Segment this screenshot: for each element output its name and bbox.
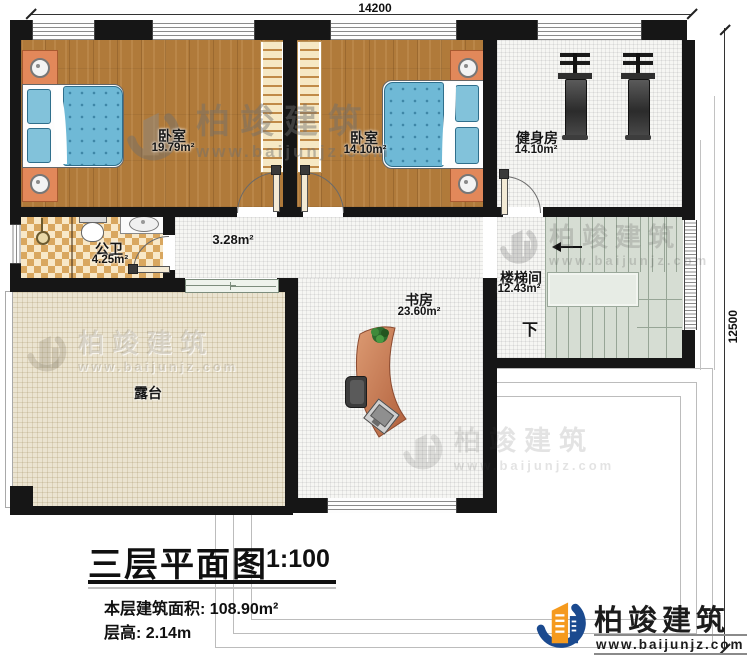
bedroom2-door-leaf — [301, 170, 308, 212]
terrace-south-wall — [10, 506, 293, 515]
dimension-top-line — [30, 14, 692, 15]
stairwell-window — [684, 220, 697, 330]
page-title: 三层平面图 — [88, 537, 268, 586]
gym-area: 14.10m² — [515, 144, 558, 156]
terrace-west-railing — [5, 291, 13, 508]
wall-segment — [640, 20, 687, 40]
wardrobe — [297, 41, 322, 173]
dimension-tick — [719, 24, 730, 35]
roof-outline-line — [714, 96, 715, 370]
sheet-fold — [442, 82, 456, 165]
drawing-scale: 1:100 — [266, 545, 330, 574]
hallway-floor — [175, 217, 483, 278]
nightstand — [22, 166, 58, 202]
bedroom1-area: 19.79m² — [152, 142, 195, 154]
terrace-sliding-door — [185, 279, 279, 293]
window — [330, 20, 457, 40]
study-south-wall — [285, 498, 327, 513]
pillow — [455, 127, 479, 164]
study-window — [327, 498, 457, 513]
stairs-landing — [548, 273, 638, 306]
wall-between-bedrooms — [283, 40, 297, 207]
bedroom1-door-leaf — [273, 170, 280, 212]
floor-area-value: 108.90m² — [210, 601, 279, 618]
pillow — [27, 89, 51, 124]
roof-outline-line — [700, 140, 701, 370]
dimension-top: 14200 — [340, 1, 410, 15]
lamp-icon — [458, 58, 478, 78]
stairwell-area: 12.43m² — [498, 283, 541, 295]
company-logo-icon — [530, 594, 588, 658]
window — [152, 20, 255, 40]
gym-door-leaf — [501, 174, 508, 215]
bathroom-divider — [71, 217, 73, 278]
bedroom-south-wall — [343, 207, 503, 217]
desk-chair — [345, 376, 367, 408]
hallway-area: 3.28m² — [212, 232, 253, 247]
wall-segment — [455, 20, 537, 40]
stairs-tread — [637, 327, 682, 328]
shower-head-icon — [36, 231, 50, 245]
title-underline-shadow — [88, 587, 336, 589]
nightstand — [450, 166, 486, 202]
terrace-east-wall — [285, 283, 298, 513]
terrace-label: 露台 — [134, 383, 162, 403]
bathroom-door-leaf — [135, 266, 170, 273]
gym-equipment — [621, 53, 655, 141]
wardrobe — [260, 41, 285, 173]
floor-height-value: 2.14m — [146, 625, 191, 642]
company-name: 柏竣建筑 — [594, 597, 730, 639]
bathroom-window — [10, 224, 21, 264]
shower-hose — [41, 218, 43, 232]
bedroom-south-wall — [277, 207, 303, 217]
stairwell-south-wall — [483, 358, 695, 368]
bedroom2-area: 14.10m² — [344, 144, 387, 156]
lamp-icon — [30, 174, 50, 194]
bed — [22, 84, 124, 168]
wall-segment — [10, 20, 32, 40]
wall-segment — [682, 330, 695, 368]
bathroom-door-hinge — [128, 264, 138, 274]
study-area: 23.60m² — [398, 306, 441, 318]
gym-door-hinge — [499, 169, 509, 179]
bathroom-east-wall — [163, 217, 175, 235]
wall-segment — [10, 40, 21, 224]
gym-equipment — [558, 53, 592, 141]
wall-segment — [682, 40, 695, 220]
stairs-stringer — [666, 217, 667, 358]
floor-plan-canvas: 柏竣建筑 www.baijunjz.com 柏竣建筑 www.baijunjz.… — [0, 0, 750, 666]
company-website: www.baijunjz.com — [594, 634, 747, 655]
study-south-wall — [455, 498, 497, 513]
floor-height-label: 层高: — [104, 625, 141, 642]
gym-south-wall — [543, 207, 695, 217]
terrace-north-wall — [10, 278, 185, 292]
bathroom-area: 4.25m² — [92, 254, 128, 266]
pillow — [455, 85, 479, 122]
wall-segment — [93, 20, 152, 40]
bed — [382, 80, 484, 169]
terrace-corner-pier — [10, 486, 33, 508]
duvet — [63, 86, 123, 166]
window — [32, 20, 95, 40]
stairs-down-label: 下 — [522, 316, 538, 340]
company-logo: 柏竣建筑 www.baijunjz.com — [500, 592, 748, 662]
duvet — [384, 82, 444, 167]
wall-segment — [253, 20, 330, 40]
bedroom2-door-hinge — [300, 165, 310, 175]
toilet — [78, 214, 106, 242]
bedroom-south-wall — [20, 207, 237, 217]
pillow — [27, 128, 51, 163]
nightstand — [22, 50, 58, 86]
floor-area-line: 本层建筑面积: 108.90m² — [104, 595, 278, 619]
dimension-right-line — [724, 28, 725, 650]
stairs-stringer — [648, 217, 649, 358]
bedroom1-door-hinge — [271, 165, 281, 175]
window — [537, 20, 642, 40]
lamp-icon — [30, 58, 50, 78]
title-underline — [88, 580, 336, 584]
stairs-direction-arrow — [552, 242, 584, 252]
study-east-wall — [483, 278, 497, 513]
stairs-tread — [637, 299, 682, 300]
floor-height-line: 层高: 2.14m — [104, 619, 191, 643]
stairs-lower-flight — [545, 304, 637, 358]
gym-west-wall — [483, 40, 497, 207]
lamp-icon — [458, 174, 478, 194]
floor-area-label: 本层建筑面积: — [104, 601, 205, 618]
dimension-right: 12500 — [726, 310, 740, 343]
